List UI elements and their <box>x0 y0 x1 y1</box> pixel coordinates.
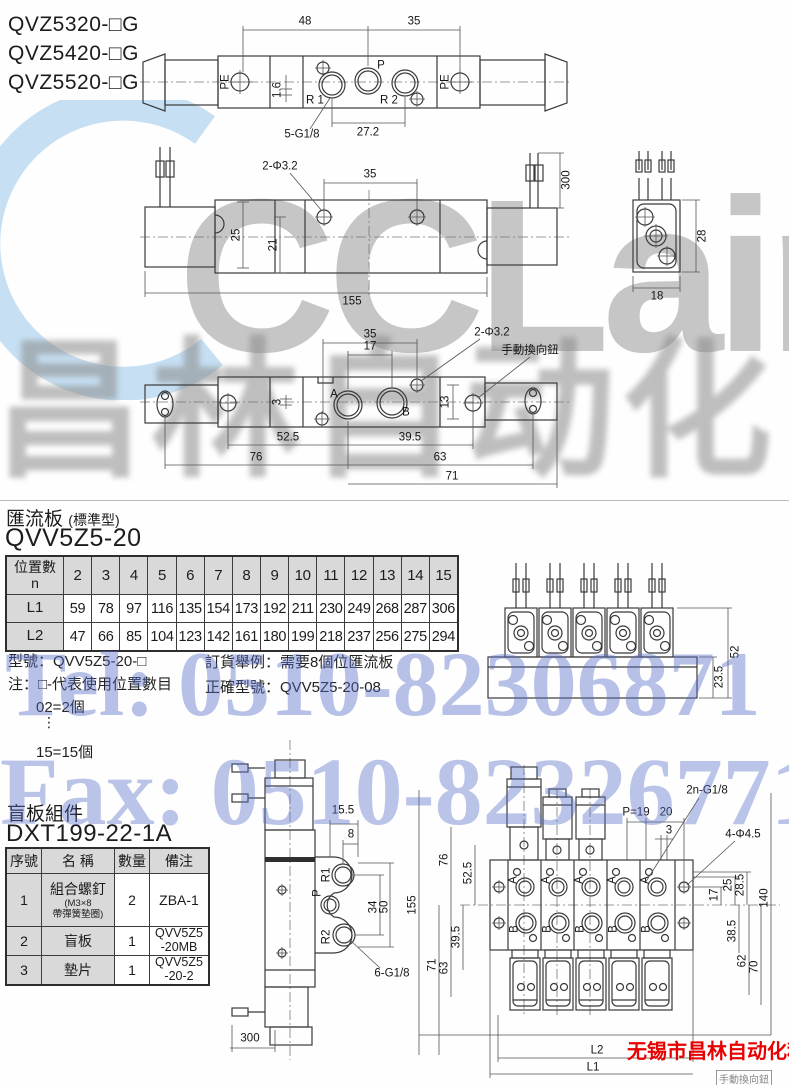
hole-label: 2-Φ3.2 <box>262 161 297 173</box>
table-cell: 230 <box>316 595 344 622</box>
dim-label: 50 <box>379 901 391 914</box>
thread-label: 5-G1/8 <box>284 129 319 141</box>
dim-label: 140 <box>759 888 771 907</box>
table-cell: 135 <box>176 595 204 622</box>
port-label: B <box>641 925 653 933</box>
thread-label: 2n-G1/8 <box>686 785 728 797</box>
manual-override-label: 手動換向鈕 <box>501 345 559 357</box>
dim-label: 52 <box>730 646 742 659</box>
table-cell: 66 <box>91 623 119 650</box>
port-label: A <box>541 876 553 884</box>
dim-label: 27.2 <box>357 127 379 139</box>
table-cell: 306 <box>429 595 457 622</box>
table-cell: 154 <box>204 595 232 622</box>
dim-label: L1 <box>587 1062 600 1074</box>
manifold-dimension-table: 位置數n 23456789101112131415 L1 59789711613… <box>5 555 459 652</box>
table-header-cell: 14 <box>401 557 429 594</box>
port-label: R1 <box>321 868 333 883</box>
table-cell: 173 <box>232 595 260 622</box>
model-name: QVZ5420-□G <box>8 39 139 68</box>
dim-label: 35 <box>408 16 421 28</box>
table-header-cell: 12 <box>344 557 372 594</box>
dim-label: L2 <box>591 1045 604 1057</box>
table-header-cell: 2 <box>63 557 91 594</box>
dim-label: 20 <box>660 807 673 819</box>
blank-plate-model: DXT199-22-1A <box>6 820 172 848</box>
dim-label: 15.5 <box>332 805 354 817</box>
table-header-cell: 10 <box>288 557 316 594</box>
table-cell: 142 <box>204 623 232 650</box>
order-example: 正確型號：QVV5Z5-20-08 <box>205 676 381 697</box>
order-example: 訂貨舉例：需要8個位匯流板 <box>205 651 393 672</box>
port-label: A <box>607 876 619 884</box>
port-label: A <box>574 876 586 884</box>
table-cell: 78 <box>91 595 119 622</box>
dim-label: 63 <box>434 452 447 464</box>
dim-label: 300 <box>561 170 573 189</box>
dim-label: 17 <box>709 889 721 902</box>
table-header-cell: 3 <box>91 557 119 594</box>
dim-label: 155 <box>407 895 419 914</box>
table-cell: 275 <box>401 623 429 650</box>
table-row: 2 盲板 1 QVV5Z5-20MB <box>7 926 208 955</box>
port-label: B <box>509 925 521 933</box>
table-row-label: L1 <box>7 595 63 622</box>
port-label: B <box>608 925 620 933</box>
order-note: 型號：QVV5Z5-20-□ <box>8 650 146 671</box>
manifold-model: QVV5Z5-20 <box>5 524 142 553</box>
dim-label: 63 <box>439 962 451 975</box>
table-cell: 97 <box>119 595 147 622</box>
port-label: B <box>575 925 587 933</box>
dim-label: 25 <box>723 879 735 892</box>
catalog-page: CCLair 昌林自动化 QVZ5320-□G QVZ5420-□G QVZ55… <box>0 0 789 1085</box>
table-header-cell: 9 <box>260 557 288 594</box>
table-header-cell: 6 <box>176 557 204 594</box>
port-label: R 2 <box>380 95 398 107</box>
table-header-cell: 備注 <box>149 849 208 873</box>
table-header-cell: 8 <box>232 557 260 594</box>
table-header-cell: 位置數n <box>7 557 63 594</box>
dim-label: 76 <box>439 854 451 867</box>
table-cell: 180 <box>260 623 288 650</box>
dim-label: 48 <box>299 16 312 28</box>
dim-label: 1.6 <box>272 82 284 98</box>
dim-label: 300 <box>240 1033 259 1045</box>
table-cell: 199 <box>288 623 316 650</box>
side-view-drawing: 48 35 PE PE P R 1 R 2 1.6 5-G1/8 27.2 <box>140 10 570 145</box>
port-label: A <box>330 389 338 401</box>
dim-label: 35 <box>364 169 377 181</box>
table-header-cell: 數量 <box>114 849 149 873</box>
table-cell: 192 <box>260 595 288 622</box>
section-divider <box>0 500 789 501</box>
table-cell: 104 <box>147 623 175 650</box>
company-name: 无锡市昌林自动化科技 <box>627 1035 789 1064</box>
dim-label: 21 <box>268 239 280 252</box>
model-name: QVZ5520-□G <box>8 68 139 97</box>
table-cell: 256 <box>373 623 401 650</box>
dim-label: 28.5 <box>735 874 747 896</box>
port-label: PE <box>220 74 232 89</box>
table-header-cell: 序號 <box>7 849 41 873</box>
hole-label: 2-Φ3.2 <box>474 327 509 339</box>
dim-label: 28 <box>697 230 709 243</box>
table-cell: 294 <box>429 623 457 650</box>
table-header-cell: 4 <box>119 557 147 594</box>
bottom-view-drawing: 35 17 2-Φ3.2 手動換向鈕 A B 3 13 52.5 39.5 76… <box>140 325 570 495</box>
model-name: QVZ5320-□G <box>8 10 139 39</box>
dim-label: 13 <box>440 396 452 409</box>
dim-label: P=19 <box>622 807 649 819</box>
table-cell: 237 <box>344 623 372 650</box>
table-header-cell: 11 <box>316 557 344 594</box>
table-header-cell: 15 <box>429 557 457 594</box>
parts-table: 序號 名 稱 數量 備注 1 組合螺釘(M3×8帶彈簧墊圈) 2 ZBA-1 2… <box>5 847 210 986</box>
model-list: QVZ5320-□G QVZ5420-□G QVZ5520-□G <box>8 10 139 97</box>
dim-label: 71 <box>446 471 459 483</box>
dim-label: 39.5 <box>451 926 463 948</box>
port-label: A <box>508 876 520 884</box>
dim-label: 52.5 <box>277 432 299 444</box>
port-label: R2 <box>321 930 333 945</box>
port-label: R 1 <box>306 95 324 107</box>
order-note: 15=15個 <box>36 741 93 762</box>
dim-label: 76 <box>250 452 263 464</box>
order-note: 注：□-代表使用位置數目 <box>8 673 172 694</box>
port-label: B <box>542 925 554 933</box>
manual-override-callout: 手動換向鈕 <box>716 1070 772 1085</box>
dim-label: 35 <box>364 329 377 341</box>
table-row: 1 組合螺釘(M3×8帶彈簧墊圈) 2 ZBA-1 <box>7 873 208 926</box>
port-label: P <box>377 60 385 72</box>
dim-label: 8 <box>348 829 354 841</box>
dim-label: 62 <box>737 955 749 968</box>
dim-label: 39.5 <box>399 432 421 444</box>
port-label: PE <box>440 74 452 89</box>
port-label: A <box>640 876 652 884</box>
dim-label: 23.5 <box>714 666 726 688</box>
table-row-label: L2 <box>7 623 63 650</box>
table-row: 3 墊片 1 QVV5Z5-20-2 <box>7 955 208 984</box>
dim-label: 18 <box>651 291 664 303</box>
dim-label: 52.5 <box>463 862 475 884</box>
table-cell: 249 <box>344 595 372 622</box>
end-view-drawing: 28 18 <box>620 148 740 313</box>
table-cell: 268 <box>373 595 401 622</box>
table-header-cell: 5 <box>147 557 175 594</box>
dim-label: 155 <box>342 296 361 308</box>
table-header-cell: 7 <box>204 557 232 594</box>
port-label: B <box>402 407 410 419</box>
manifold-front-drawing: 52 23.5 <box>480 555 780 705</box>
table-header-cell: 名 稱 <box>41 849 114 873</box>
table-cell: 218 <box>316 623 344 650</box>
dim-label: 3 <box>666 825 672 837</box>
ellipsis: ⋮ <box>42 714 56 731</box>
table-cell: 161 <box>232 623 260 650</box>
table-cell: 211 <box>288 595 316 622</box>
dim-label: 3 <box>272 399 284 405</box>
dim-label: 71 <box>427 959 439 972</box>
hole-label: 4-Φ4.5 <box>725 829 760 841</box>
dim-label: 17 <box>364 341 377 353</box>
dim-label: 25 <box>231 229 243 242</box>
table-cell: 123 <box>176 623 204 650</box>
table-cell: 116 <box>147 595 175 622</box>
dim-label: 70 <box>749 961 761 974</box>
table-cell: 47 <box>63 623 91 650</box>
table-header-cell: 13 <box>373 557 401 594</box>
top-view-drawing: 2-Φ3.2 35 300 25 21 155 <box>140 145 570 310</box>
table-cell: 59 <box>63 595 91 622</box>
port-label: P <box>312 889 324 897</box>
dim-label: 38.5 <box>727 920 739 942</box>
table-cell: 85 <box>119 623 147 650</box>
table-cell: 287 <box>401 595 429 622</box>
